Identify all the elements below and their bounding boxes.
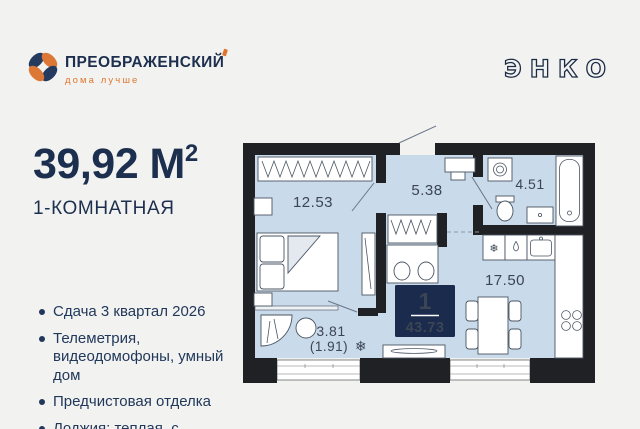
area-value: 39,92 М — [33, 140, 185, 188]
nightstand — [254, 293, 272, 306]
apartment-area: 39,92 М2 — [33, 140, 198, 189]
pillow — [260, 264, 284, 289]
feature-item: Телеметрия, видеодомофоны, умный дом — [36, 330, 238, 386]
chair — [466, 329, 478, 349]
brand-logo: ПРЕОБРАЖЕНСКИЙ дома лучше — [27, 51, 224, 86]
feature-list: Сдача 3 квартал 2026 Телеметрия, видеодо… — [36, 303, 238, 429]
feature-text: Сдача 3 квартал 2026 — [53, 303, 205, 320]
round-table — [296, 318, 316, 338]
loggia-area-label: 3.81 — [316, 323, 345, 339]
fridge-snowflake-icon: ❄ — [489, 243, 498, 255]
bedroom-area-label: 12.53 — [293, 194, 333, 211]
badge-rooms-count: 1 — [419, 288, 432, 314]
apartment-type: 1-КОМНАТНАЯ — [33, 198, 175, 220]
toilet — [497, 201, 513, 221]
loggia-partition — [255, 306, 338, 310]
chair — [418, 262, 434, 280]
hallway-area-label: 5.38 — [411, 182, 442, 199]
listing-card: ПРЕОБРАЖЕНСКИЙ дома лучше ЭНКО 39,92 М2 … — [0, 0, 640, 429]
developer-logo-text: ЭНКО — [504, 56, 612, 83]
loggia-coefficient-label: (1.91) — [310, 339, 348, 354]
shoe-cabinet — [445, 158, 475, 172]
brand-accent-mark — [222, 49, 228, 57]
chair — [509, 329, 521, 349]
badge-total-area: 43.73 — [406, 320, 445, 336]
brand-name: ПРЕОБРАЖЕНСКИЙ — [65, 54, 224, 72]
area-badge: 1 43.73 — [395, 285, 455, 337]
dishwasher — [505, 235, 527, 260]
feature-text: Телеметрия, видеодомофоны, умный дом — [53, 330, 223, 384]
pinwheel-icon — [27, 51, 59, 83]
feature-text: Лоджия: теплая, с витражными — [53, 420, 179, 429]
feature-item: Лоджия: теплая, с витражными — [36, 420, 238, 429]
kitchen-area-label: 17.50 — [485, 272, 525, 289]
feature-text: Предчистовая отделка — [53, 393, 211, 410]
feature-item: Предчистовая отделка — [36, 393, 238, 412]
floorplan: ❄ 12.53 5.38 4.51 — [240, 125, 600, 400]
closet — [388, 215, 437, 243]
nightstand — [254, 198, 272, 215]
bathroom-area-label: 4.51 — [515, 176, 544, 192]
chair — [509, 301, 521, 321]
loggia-snowflake-icon: ❄ — [355, 338, 367, 354]
shoe-bench — [451, 172, 465, 180]
developer-logo: ЭНКО — [502, 56, 616, 84]
area-exponent: 2 — [185, 140, 198, 167]
bathroom-sink — [527, 207, 553, 223]
dining-table — [478, 297, 508, 354]
chair — [394, 262, 410, 280]
washing-machine — [488, 158, 512, 181]
feature-item: Сдача 3 квартал 2026 — [36, 303, 238, 322]
kitchen-counter — [555, 235, 583, 358]
chair — [466, 301, 478, 321]
brand-tagline: дома лучше — [65, 75, 224, 86]
mirror-wardrobe — [362, 233, 375, 295]
window — [277, 360, 360, 380]
window — [450, 360, 530, 380]
pillow — [260, 236, 284, 262]
